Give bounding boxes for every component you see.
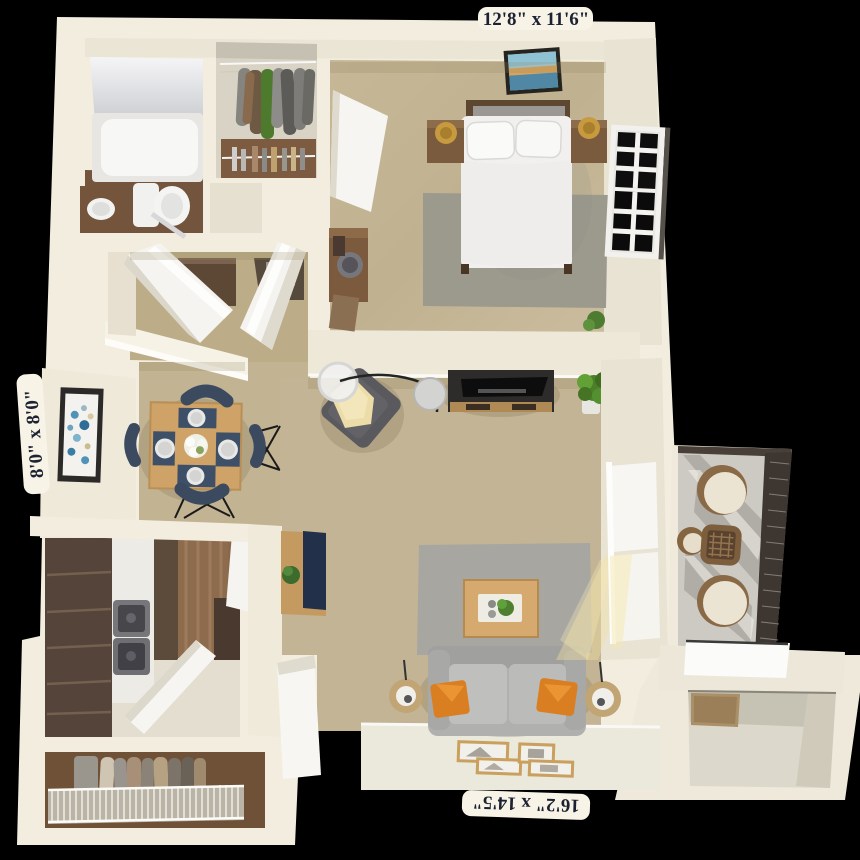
svg-text:16'2" x 14'5": 16'2" x 14'5"	[472, 791, 580, 816]
svg-text:12'8" x 11'6": 12'8" x 11'6"	[483, 9, 590, 30]
